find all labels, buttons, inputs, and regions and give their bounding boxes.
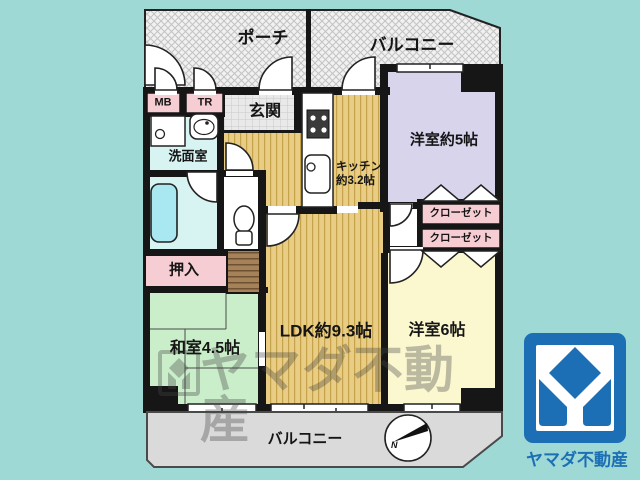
stove-icon (307, 110, 329, 138)
toilet-icon (234, 206, 254, 245)
porch-balcony-divider-wall (306, 9, 311, 91)
washroom-sink-icon (190, 114, 218, 139)
japanese-room-label: 和室4.5帖 (170, 341, 240, 357)
brand-name: ヤマダ不動産 (526, 446, 628, 471)
washroom-label: 洗面室 (168, 150, 207, 163)
bathtub-icon (151, 184, 177, 242)
floor-plan-page: ヤマダ不動産 ポーチ バルコニー MB TR 玄関 洗面室 キッチン 約3.2帖… (0, 0, 640, 480)
western-room-6-label: 洋室6帖 (409, 323, 466, 339)
kitchen-sink-icon (305, 155, 330, 193)
brand-logo-icon (521, 331, 631, 447)
compass-north-label: N (391, 440, 398, 450)
ldk-label: LDK約9.3帖 (280, 323, 373, 340)
washing-machine-icon (151, 116, 185, 146)
western-room-5-label: 洋室約5帖 (410, 133, 478, 148)
porch-label: ポーチ (238, 30, 289, 47)
meter-box-label: MB (154, 98, 171, 109)
trunk-room-label: TR (198, 98, 213, 109)
closet-lower-label: クローゼット (430, 233, 493, 244)
oshiire-label: 押入 (169, 263, 199, 278)
entrance-label: 玄関 (249, 104, 281, 120)
closet-upper-label: クローゼット (430, 208, 493, 219)
kitchen-label: キッチン 約3.2帖 (336, 160, 382, 189)
balcony-top-label: バルコニー (370, 37, 455, 54)
balcony-bottom-label: バルコニー (268, 432, 343, 447)
storage-steps-box (227, 250, 260, 293)
kitchen-counter (302, 93, 333, 207)
watermark-text: ヤマダ不動産 (200, 345, 492, 445)
